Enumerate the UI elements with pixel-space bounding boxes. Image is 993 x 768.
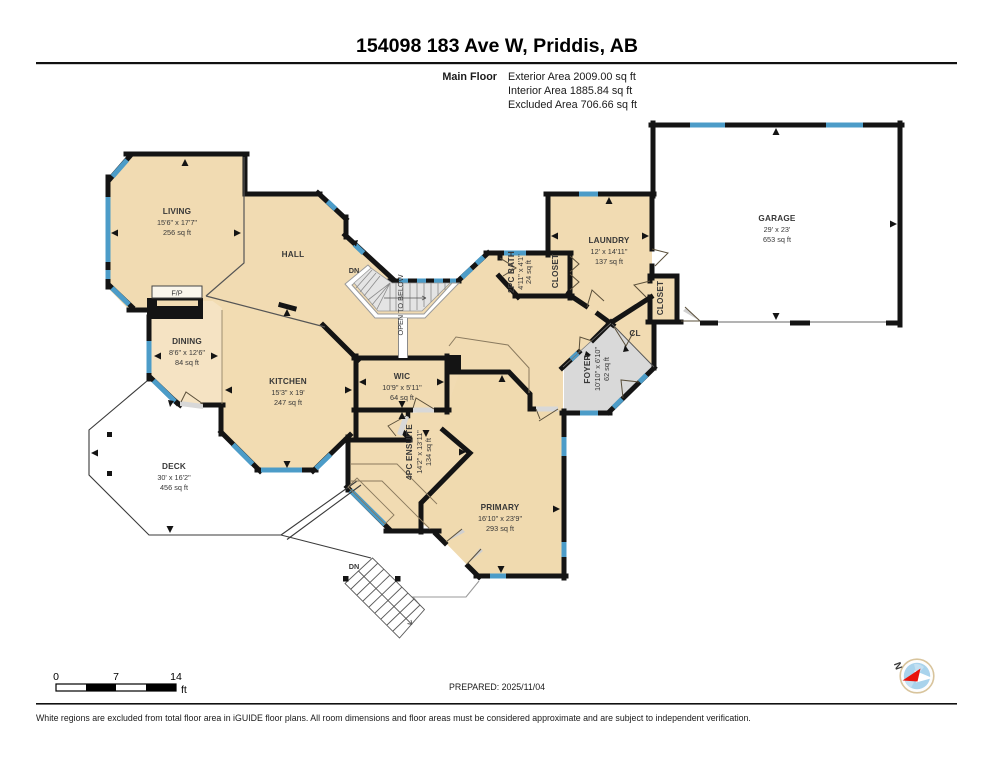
svg-text:15'3" x 19': 15'3" x 19' xyxy=(271,388,305,397)
svg-text:24 sq ft: 24 sq ft xyxy=(524,260,533,284)
svg-text:WIC: WIC xyxy=(394,372,411,381)
svg-text:PRIMARY: PRIMARY xyxy=(481,503,520,512)
svg-text:653 sq ft: 653 sq ft xyxy=(763,235,791,244)
svg-text:10'10" x 6'10": 10'10" x 6'10" xyxy=(593,347,602,391)
svg-text:0: 0 xyxy=(53,671,59,683)
svg-text:14'2" x 13'11": 14'2" x 13'11" xyxy=(415,430,424,474)
svg-text:8'6" x 12'6": 8'6" x 12'6" xyxy=(169,348,205,357)
svg-text:15'6" x 17'7": 15'6" x 17'7" xyxy=(157,218,197,227)
svg-text:2PC BATH: 2PC BATH xyxy=(507,251,516,293)
svg-text:KITCHEN: KITCHEN xyxy=(269,377,307,386)
svg-text:247 sq ft: 247 sq ft xyxy=(274,398,302,407)
svg-text:FOYER: FOYER xyxy=(583,354,592,383)
svg-text:LIVING: LIVING xyxy=(163,207,192,216)
svg-text:137 sq ft: 137 sq ft xyxy=(595,257,623,266)
svg-text:134 sq ft: 134 sq ft xyxy=(424,438,433,466)
svg-text:DN: DN xyxy=(349,266,360,275)
svg-text:4PC ENSUITE: 4PC ENSUITE xyxy=(405,424,414,480)
svg-text:CLOSET: CLOSET xyxy=(551,254,560,288)
svg-text:CL: CL xyxy=(629,329,640,338)
svg-text:293 sq ft: 293 sq ft xyxy=(486,524,514,533)
svg-text:White regions are excluded fro: White regions are excluded from total fl… xyxy=(36,713,751,723)
svg-text:DECK: DECK xyxy=(162,462,186,471)
svg-text:62 sq ft: 62 sq ft xyxy=(602,357,611,381)
svg-text:Excluded Area 706.66 sq ft: Excluded Area 706.66 sq ft xyxy=(508,99,637,111)
svg-text:Exterior Area 2009.00 sq ft: Exterior Area 2009.00 sq ft xyxy=(508,71,636,83)
svg-text:10'9" x 5'11": 10'9" x 5'11" xyxy=(382,383,422,392)
svg-text:PREPARED: 2025/11/04: PREPARED: 2025/11/04 xyxy=(449,682,545,692)
svg-text:84 sq ft: 84 sq ft xyxy=(175,358,199,367)
svg-text:256 sq ft: 256 sq ft xyxy=(163,228,191,237)
svg-text:DINING: DINING xyxy=(172,337,202,346)
svg-text:154098 183 Ave W, Priddis, AB: 154098 183 Ave W, Priddis, AB xyxy=(356,35,638,57)
svg-text:29' x 23': 29' x 23' xyxy=(764,225,791,234)
svg-text:HALL: HALL xyxy=(282,250,305,259)
svg-text:ft: ft xyxy=(181,684,187,696)
svg-text:7: 7 xyxy=(113,671,119,683)
svg-text:OPEN TO BELOW: OPEN TO BELOW xyxy=(396,274,405,335)
svg-text:12' x 14'11": 12' x 14'11" xyxy=(591,247,628,256)
svg-text:CLOSET: CLOSET xyxy=(656,281,665,315)
svg-text:Main Floor: Main Floor xyxy=(442,71,497,83)
svg-text:F/P: F/P xyxy=(171,289,182,298)
svg-text:GARAGE: GARAGE xyxy=(758,214,795,223)
svg-text:30' x 16'2": 30' x 16'2" xyxy=(157,473,191,482)
svg-text:16'10" x 23'9": 16'10" x 23'9" xyxy=(478,514,522,523)
svg-text:LAUNDRY: LAUNDRY xyxy=(588,236,629,245)
svg-text:14: 14 xyxy=(170,671,182,683)
svg-text:64 sq ft: 64 sq ft xyxy=(390,393,414,402)
svg-text:Interior Area 1885.84 sq ft: Interior Area 1885.84 sq ft xyxy=(508,85,632,97)
svg-text:456 sq ft: 456 sq ft xyxy=(160,483,188,492)
svg-text:DN: DN xyxy=(349,562,360,571)
